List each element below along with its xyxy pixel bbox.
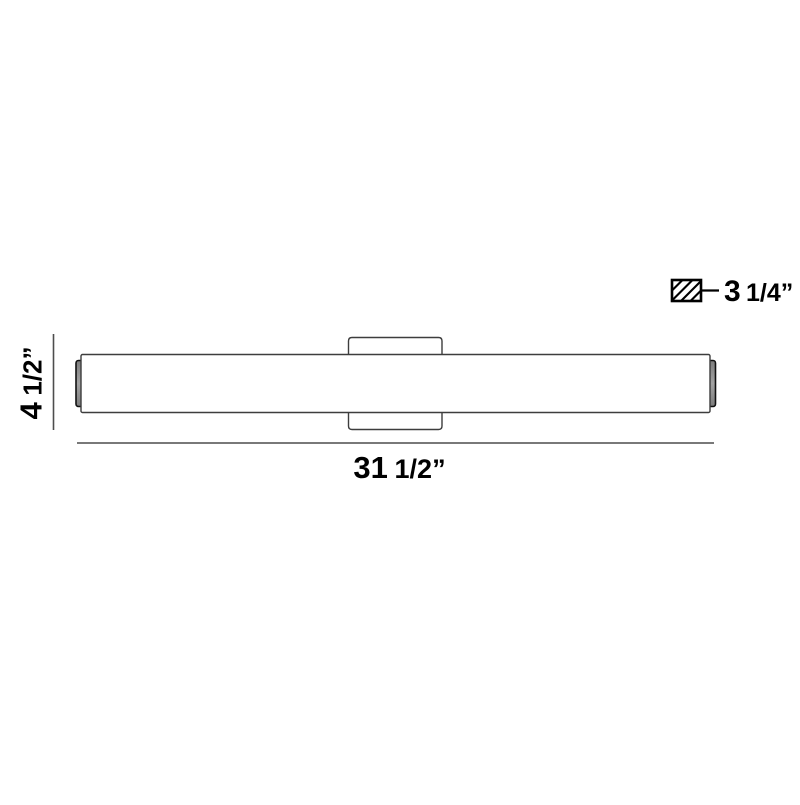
svg-text:31 1/2”: 31 1/2” [353,450,445,485]
svg-text:3 1/4”: 3 1/4” [724,275,793,308]
svg-text:4 1/2”: 4 1/2” [14,346,49,419]
